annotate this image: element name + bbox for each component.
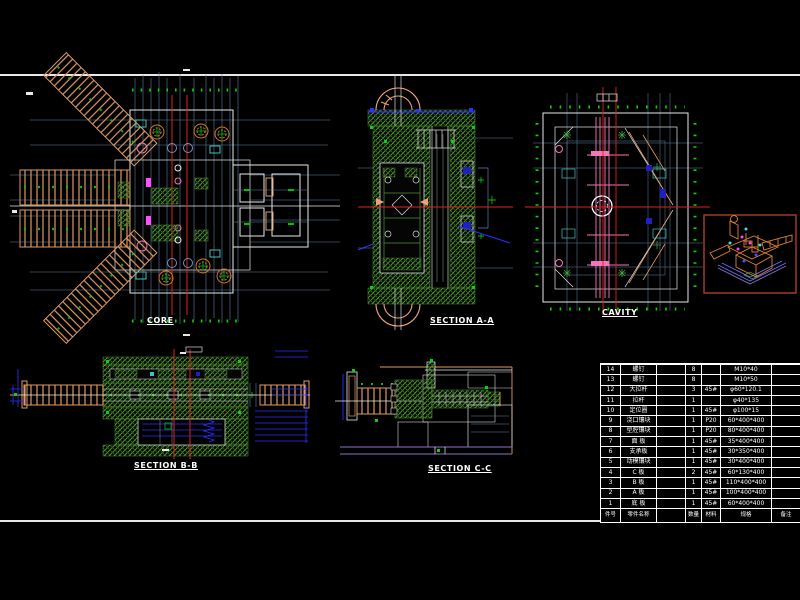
bom-cell-name: 底 板 bbox=[620, 499, 656, 508]
bom-cell-name: 动模镶块 bbox=[620, 458, 656, 467]
bom-cell-drawing bbox=[656, 416, 685, 425]
bom-table: 14 螺钉 8 M10*40 13 螺钉 8 M10*50 bbox=[600, 363, 800, 523]
section-bb-label: SECTION B-B bbox=[134, 461, 198, 470]
bom-cell-spec: 60*130*400 bbox=[720, 468, 771, 477]
bom-cell-remark bbox=[771, 396, 800, 405]
bom-cell-name: 螺钉 bbox=[620, 365, 656, 374]
bom-cell-qty: 1 bbox=[685, 396, 701, 405]
bom-header-row: 件号 零件名称 数量 材料 规格 备注 bbox=[601, 508, 800, 522]
bom-cell-spec: 60*400*400 bbox=[720, 416, 771, 425]
bom-cell-spec: φ100*15 bbox=[720, 406, 771, 415]
bom-cell-name: 支承板 bbox=[620, 447, 656, 456]
bom-header-qty: 数量 bbox=[685, 509, 701, 522]
bom-row: 12 大拉杆 3 45# φ60*120.1 bbox=[601, 385, 800, 395]
bom-cell-drawing bbox=[656, 386, 685, 395]
core-view-label: CORE bbox=[147, 316, 174, 325]
bom-cell-name: 面 板 bbox=[620, 437, 656, 446]
bom-cell-no: 11 bbox=[601, 396, 620, 405]
bom-header-remark: 备注 bbox=[771, 509, 800, 522]
cavity-view-label: CAVITY bbox=[602, 308, 638, 317]
bom-cell-qty: 8 bbox=[685, 365, 701, 374]
bom-cell-drawing bbox=[656, 396, 685, 405]
bom-row: 6 支承板 1 45# 30*350*400 bbox=[601, 446, 800, 456]
bom-row: 9 浇口镶块 1 P20 60*400*400 bbox=[601, 415, 800, 425]
bom-cell-no: 1 bbox=[601, 499, 620, 508]
bom-cell-spec: 110*400*400 bbox=[720, 478, 771, 487]
bom-header-drawing bbox=[656, 509, 685, 522]
section-aa-drawing bbox=[358, 68, 513, 336]
cc-slide-block bbox=[395, 380, 432, 418]
core-diagonal-arm-top bbox=[44, 53, 157, 166]
core-view-drawing bbox=[10, 50, 340, 345]
bom-cell-remark bbox=[771, 375, 800, 384]
cc-bottom-plate bbox=[340, 447, 512, 454]
bom-cell-material: 45# bbox=[701, 489, 720, 498]
bom-cell-qty: 3 bbox=[685, 386, 701, 395]
bom-cell-remark bbox=[771, 386, 800, 395]
bom-cell-remark bbox=[771, 427, 800, 436]
bom-cell-no: 2 bbox=[601, 489, 620, 498]
core-gear-circles bbox=[150, 124, 231, 285]
bom-cell-qty: 1 bbox=[685, 458, 701, 467]
bom-cell-drawing bbox=[656, 437, 685, 446]
cavity-dim-grid bbox=[533, 93, 703, 311]
bom-cell-qty: 1 bbox=[685, 478, 701, 487]
bom-cell-material: 45# bbox=[701, 386, 720, 395]
bom-cell-material: 45# bbox=[701, 478, 720, 487]
bom-cell-material: 45# bbox=[701, 458, 720, 467]
bom-cell-name: 浇口镶块 bbox=[620, 416, 656, 425]
bom-cell-qty: 1 bbox=[685, 447, 701, 456]
bom-cell-no: 12 bbox=[601, 386, 620, 395]
section-bb-drawing bbox=[10, 345, 310, 465]
bom-cell-name: C 板 bbox=[620, 468, 656, 477]
cavity-runner bbox=[587, 117, 629, 298]
bom-cell-qty: 1 bbox=[685, 427, 701, 436]
bom-cell-remark bbox=[771, 499, 800, 508]
bom-cell-drawing bbox=[656, 427, 685, 436]
bom-cell-qty: 1 bbox=[685, 406, 701, 415]
core-centerline-red bbox=[172, 95, 187, 315]
bom-cell-no: 9 bbox=[601, 416, 620, 425]
bom-cell-name: A 板 bbox=[620, 489, 656, 498]
bom-cell-remark bbox=[771, 468, 800, 477]
bom-row: 7 面 板 1 45# 35*400*400 bbox=[601, 436, 800, 446]
cavity-view-drawing bbox=[525, 83, 710, 320]
bom-cell-material: P20 bbox=[701, 416, 720, 425]
bom-cell-material: 45# bbox=[701, 447, 720, 456]
bom-cell-spec: 30*350*400 bbox=[720, 447, 771, 456]
bom-cell-qty: 1 bbox=[685, 416, 701, 425]
bom-cell-qty: 1 bbox=[685, 437, 701, 446]
bom-cell-material: P20 bbox=[701, 427, 720, 436]
bom-row: 13 螺钉 8 M10*50 bbox=[601, 374, 800, 384]
bom-row: 3 B 板 1 45# 110*400*400 bbox=[601, 477, 800, 487]
bom-cell-drawing bbox=[656, 365, 685, 374]
bom-cell-name: 型腔镶块 bbox=[620, 427, 656, 436]
bom-cell-spec: φ60*120.1 bbox=[720, 386, 771, 395]
bom-cell-spec: 35*400*400 bbox=[720, 437, 771, 446]
bom-cell-spec: 80*400*400 bbox=[720, 427, 771, 436]
bom-cell-qty: 1 bbox=[685, 489, 701, 498]
bom-cell-drawing bbox=[656, 478, 685, 487]
bom-cell-spec: M10*50 bbox=[720, 375, 771, 384]
iso-view-drawing bbox=[700, 205, 800, 297]
bom-cell-material: 45# bbox=[701, 499, 720, 508]
bom-cell-remark bbox=[771, 365, 800, 374]
bb-spring bbox=[204, 420, 214, 442]
core-left-arms bbox=[20, 170, 130, 247]
bom-cell-material: 45# bbox=[701, 468, 720, 477]
bom-cell-remark bbox=[771, 437, 800, 446]
bom-cell-name: B 板 bbox=[620, 478, 656, 487]
bom-cell-remark bbox=[771, 489, 800, 498]
bom-cell-remark bbox=[771, 447, 800, 456]
bom-cell-no: 14 bbox=[601, 365, 620, 374]
bom-cell-drawing bbox=[656, 447, 685, 456]
bom-cell-remark bbox=[771, 416, 800, 425]
bom-row: 8 型腔镶块 1 P20 80*400*400 bbox=[601, 426, 800, 436]
bom-cell-no: 8 bbox=[601, 427, 620, 436]
bom-header-spec: 规格 bbox=[720, 509, 771, 522]
bom-row: 5 动模镶块 1 45# 30*400*400 bbox=[601, 457, 800, 467]
bom-cell-qty: 1 bbox=[685, 499, 701, 508]
bom-cell-drawing bbox=[656, 375, 685, 384]
bom-cell-material bbox=[701, 396, 720, 405]
bom-cell-no: 13 bbox=[601, 375, 620, 384]
bom-header-name: 零件名称 bbox=[620, 509, 656, 522]
bom-cell-no: 7 bbox=[601, 437, 620, 446]
bom-cell-spec: 100*400*400 bbox=[720, 489, 771, 498]
bom-cell-material: 45# bbox=[701, 437, 720, 446]
section-aa-label: SECTION A-A bbox=[430, 316, 494, 325]
bom-cell-drawing bbox=[656, 406, 685, 415]
bom-cell-spec: M10*40 bbox=[720, 365, 771, 374]
bom-row: 10 定位圈 1 45# φ100*15 bbox=[601, 405, 800, 415]
bom-cell-no: 5 bbox=[601, 458, 620, 467]
bom-row: 4 C 板 2 45# 60*130*400 bbox=[601, 467, 800, 477]
bom-header-no: 件号 bbox=[601, 509, 620, 522]
bom-cell-name: 定位圈 bbox=[620, 406, 656, 415]
bom-row: 1 底 板 1 45# 60*400*400 bbox=[601, 498, 800, 508]
bom-cell-qty: 8 bbox=[685, 375, 701, 384]
bom-cell-material: 45# bbox=[701, 406, 720, 415]
bom-cell-name: 大拉杆 bbox=[620, 386, 656, 395]
bom-cell-no: 10 bbox=[601, 406, 620, 415]
bom-cell-name: 螺钉 bbox=[620, 375, 656, 384]
bom-cell-no: 3 bbox=[601, 478, 620, 487]
section-cc-drawing bbox=[335, 358, 515, 476]
bom-header-material: 材料 bbox=[701, 509, 720, 522]
bom-cell-qty: 2 bbox=[685, 468, 701, 477]
bom-cell-spec: 60*400*400 bbox=[720, 499, 771, 508]
drawing-sheet: CORE SECTION A-A CAVITY SECTION B-B SECT… bbox=[0, 0, 800, 600]
bom-row: 14 螺钉 8 M10*40 bbox=[601, 364, 800, 374]
iso-model bbox=[710, 216, 792, 278]
bom-row: 11 拉杆 1 φ40*135 bbox=[601, 395, 800, 405]
bom-cell-material bbox=[701, 375, 720, 384]
bom-body: 14 螺钉 8 M10*40 13 螺钉 8 M10*50 bbox=[601, 364, 800, 508]
bom-cell-no: 6 bbox=[601, 447, 620, 456]
bom-cell-spec: 30*400*400 bbox=[720, 458, 771, 467]
bom-cell-remark bbox=[771, 406, 800, 415]
bom-cell-no: 4 bbox=[601, 468, 620, 477]
section-cc-label: SECTION C-C bbox=[428, 464, 492, 473]
bom-cell-spec: φ40*135 bbox=[720, 396, 771, 405]
bom-cell-drawing bbox=[656, 489, 685, 498]
bom-row: 2 A 板 1 45# 100*400*400 bbox=[601, 488, 800, 498]
bom-cell-remark bbox=[771, 478, 800, 487]
bom-cell-drawing bbox=[656, 458, 685, 467]
bom-cell-remark bbox=[771, 458, 800, 467]
bom-cell-name: 拉杆 bbox=[620, 396, 656, 405]
bom-cell-drawing bbox=[656, 499, 685, 508]
bom-cell-drawing bbox=[656, 468, 685, 477]
core-hatch-inserts bbox=[118, 178, 208, 241]
bom-cell-material bbox=[701, 365, 720, 374]
